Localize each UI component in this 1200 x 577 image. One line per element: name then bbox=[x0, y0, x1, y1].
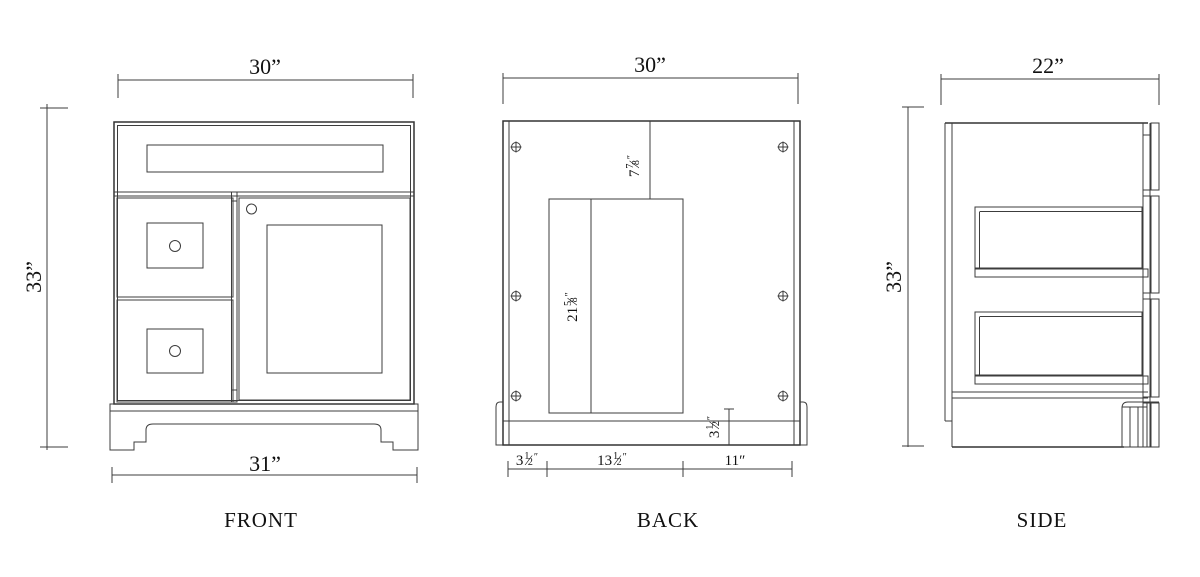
side-drawer-box-top bbox=[975, 207, 1148, 277]
front-cabinet-outline bbox=[114, 122, 414, 404]
side-cabinet-outline bbox=[945, 123, 1148, 447]
back-cabinet-outline bbox=[496, 121, 807, 445]
front-left-dimension: 33” bbox=[21, 104, 68, 450]
screw-icon bbox=[511, 291, 522, 302]
front-height-label: 33” bbox=[21, 261, 46, 293]
screw-icon bbox=[778, 391, 789, 402]
front-base-skirt bbox=[110, 404, 418, 450]
vanity-dimension-drawing: 30” 33” bbox=[0, 0, 1200, 577]
overlay-drawer-bottom bbox=[1151, 299, 1159, 397]
front-width-label: 30” bbox=[249, 54, 281, 79]
overlay-base bbox=[1151, 403, 1159, 447]
back-bottom-rail-label: 31⁄2″ bbox=[705, 416, 723, 438]
back-segment-mid-label: 131⁄2″ bbox=[597, 451, 627, 469]
side-base-detail bbox=[1122, 402, 1159, 447]
back-segment-right-label: 11″ bbox=[725, 453, 746, 469]
door-knob bbox=[247, 204, 257, 214]
drawer-panel bbox=[147, 223, 203, 268]
drawer-panel bbox=[147, 329, 203, 373]
overlay-drawer-top bbox=[1151, 196, 1159, 293]
front-view-title: FRONT bbox=[224, 508, 298, 532]
back-view: 30” 77⁄8″ 215⁄8″ bbox=[496, 52, 807, 532]
side-view: 22” 33” bbox=[881, 53, 1159, 532]
front-bottom-dimension: 31” bbox=[112, 451, 417, 483]
front-view: 30” 33” bbox=[21, 54, 418, 532]
screw-icon bbox=[778, 142, 789, 153]
drawer-knob bbox=[170, 241, 181, 252]
back-width-label: 30” bbox=[634, 52, 666, 77]
back-bottom-rail-dimension: 31⁄2″ bbox=[705, 409, 734, 445]
side-left-dimension: 33” bbox=[881, 107, 924, 447]
base-molding-left bbox=[496, 402, 503, 445]
side-height-label: 33” bbox=[881, 261, 906, 293]
back-segment-left-label: 31⁄2″ bbox=[516, 451, 538, 469]
front-top-dimension: 30” bbox=[118, 54, 413, 98]
front-door bbox=[239, 198, 410, 400]
front-drawer-top bbox=[117, 198, 233, 297]
back-bottom-dimension-row: 31⁄2″ 131⁄2″ 11″ bbox=[508, 451, 792, 477]
side-view-title: SIDE bbox=[1017, 508, 1068, 532]
drawer-slide-rail bbox=[975, 269, 1148, 277]
side-depth-label: 22” bbox=[1032, 53, 1064, 78]
drawer-knob bbox=[170, 346, 181, 357]
drawing-canvas: 30” 33” bbox=[0, 0, 1200, 577]
front-base-width-label: 31” bbox=[249, 451, 281, 476]
door-panel bbox=[267, 225, 382, 373]
drawer-slide-rail bbox=[975, 376, 1148, 384]
front-top-rail-panel bbox=[147, 145, 383, 172]
back-opening-dimension-label: 215⁄8″ bbox=[563, 292, 581, 322]
base-molding-right bbox=[800, 402, 807, 445]
front-drawer-bottom bbox=[117, 300, 233, 402]
back-plumbing-opening bbox=[549, 121, 683, 413]
back-drop-dimension-label: 77⁄8″ bbox=[625, 155, 643, 177]
back-view-title: BACK bbox=[637, 508, 699, 532]
screw-icon bbox=[511, 142, 522, 153]
back-top-dimension: 30” bbox=[503, 52, 798, 104]
screw-icon bbox=[511, 391, 522, 402]
side-drawer-box-bottom bbox=[975, 312, 1148, 384]
overlay-top-rail bbox=[1151, 123, 1159, 190]
screw-icon bbox=[778, 291, 789, 302]
side-top-dimension: 22” bbox=[941, 53, 1159, 105]
side-front-overlays bbox=[1151, 123, 1159, 447]
